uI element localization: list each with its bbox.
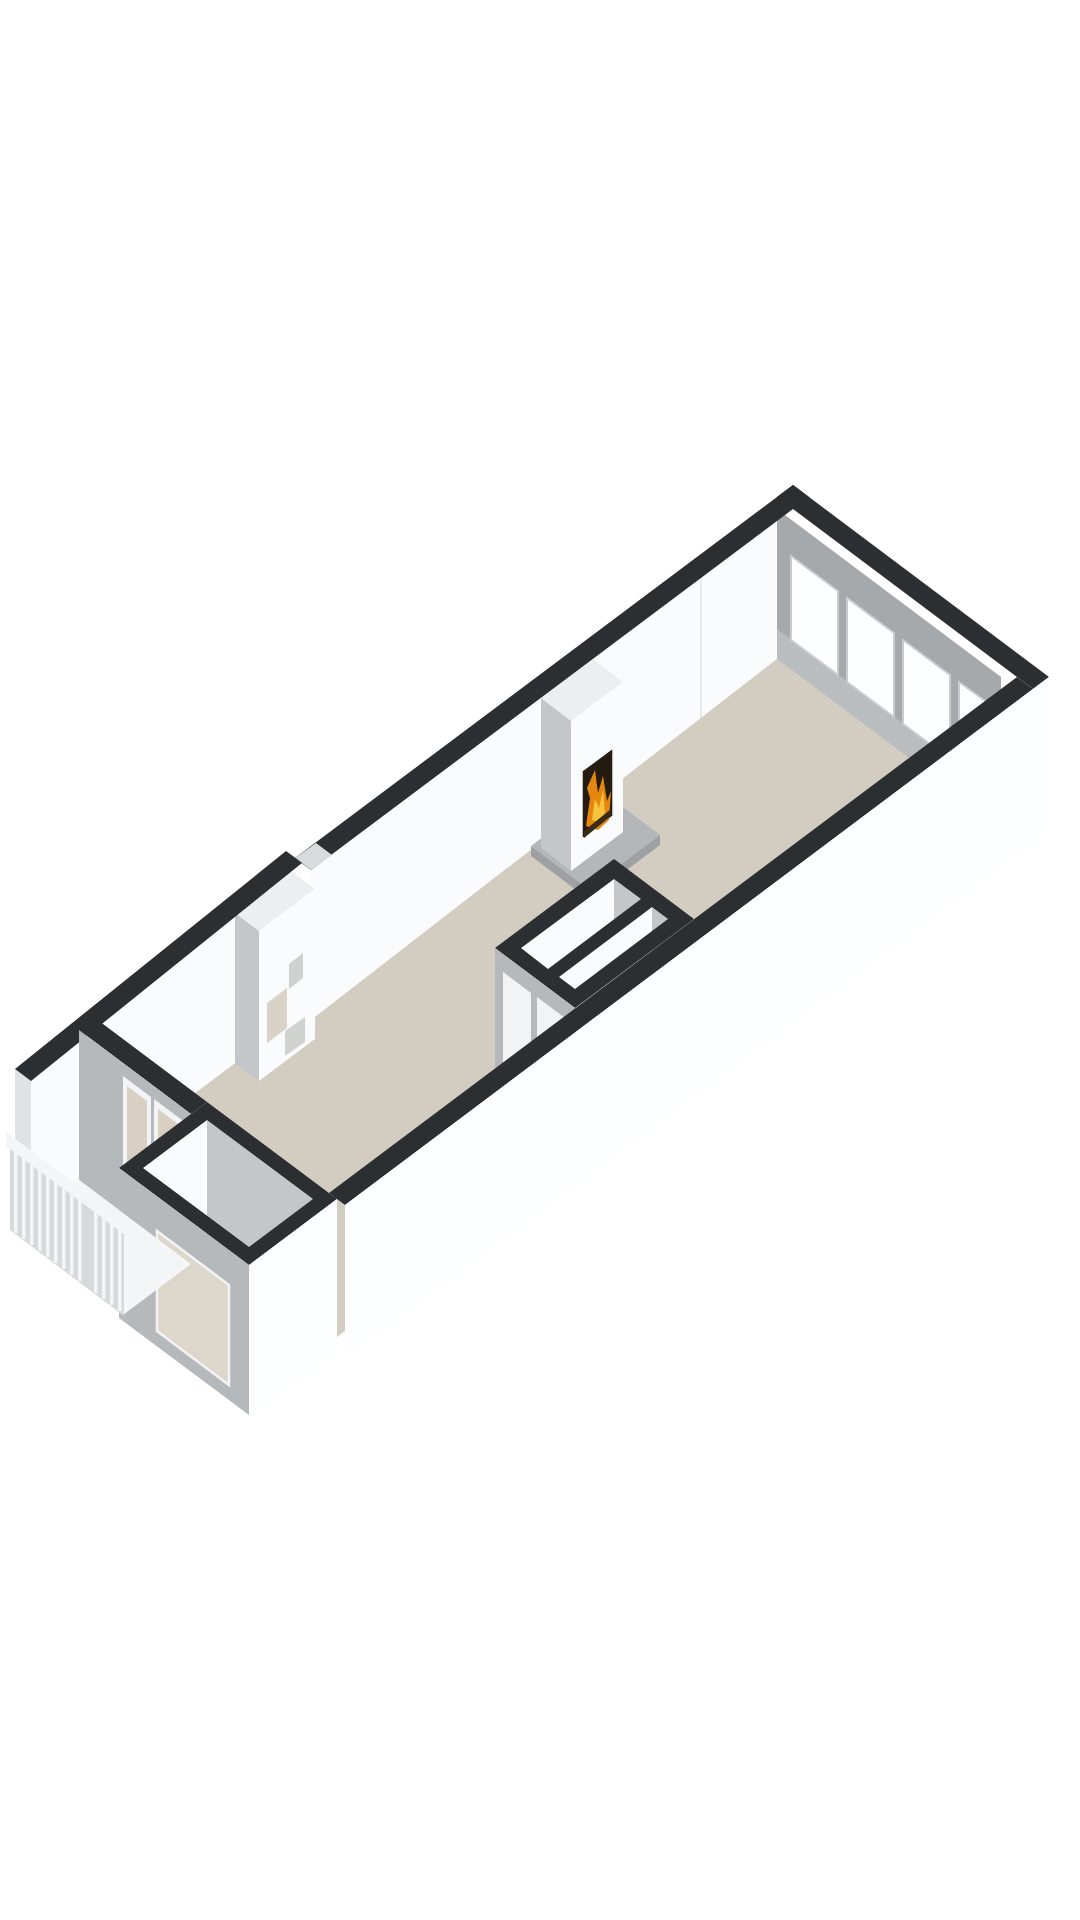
baluster	[22, 1156, 26, 1239]
baluster	[62, 1186, 66, 1269]
baluster	[110, 1222, 114, 1305]
baluster	[30, 1162, 34, 1245]
floor-plan-canvas	[0, 0, 1080, 1920]
baluster	[54, 1180, 58, 1263]
shaft-side-face	[235, 913, 259, 1081]
floor-plan-3d-render	[0, 0, 1080, 1920]
baluster	[78, 1198, 82, 1281]
baluster	[94, 1210, 98, 1293]
baluster	[118, 1228, 122, 1311]
baluster	[102, 1216, 106, 1299]
baluster	[46, 1174, 50, 1257]
baluster	[14, 1150, 18, 1233]
baluster	[70, 1192, 74, 1275]
baluster	[38, 1168, 42, 1251]
chimney-side-face	[541, 698, 571, 871]
